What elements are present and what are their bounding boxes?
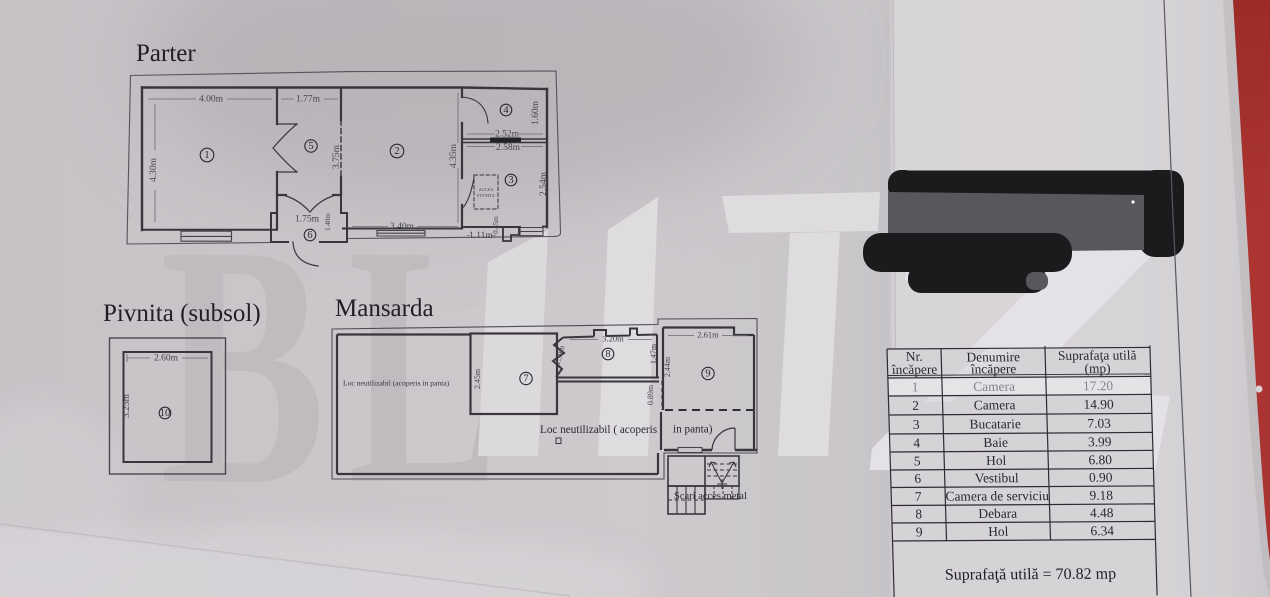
svg-text:3.99: 3.99 <box>1088 434 1112 449</box>
svg-text:7.03: 7.03 <box>1087 416 1111 431</box>
svg-text:17.20: 17.20 <box>1083 378 1114 393</box>
svg-text:2: 2 <box>912 398 919 413</box>
svg-text:1.60m: 1.60m <box>531 100 541 125</box>
svg-text:5: 5 <box>308 141 313 152</box>
svg-text:4: 4 <box>913 435 920 450</box>
svg-text:Camera: Camera <box>973 379 1015 394</box>
svg-text:4.35m: 4.35m <box>449 143 459 168</box>
svg-text:2.54m: 2.54m <box>539 171 549 196</box>
svg-text:Hol: Hol <box>986 453 1007 468</box>
svg-text:Parter: Parter <box>136 40 196 67</box>
svg-text:1: 1 <box>204 150 209 161</box>
svg-text:Mansarda: Mansarda <box>335 295 434 322</box>
svg-text:6.80: 6.80 <box>1088 452 1112 467</box>
svg-text:4.30m: 4.30m <box>149 157 159 182</box>
svg-text:5: 5 <box>914 453 921 468</box>
svg-text:Loc neutilizabil (acoperis in: Loc neutilizabil (acoperis in panta) <box>343 379 450 388</box>
svg-text:7: 7 <box>523 374 528 385</box>
svg-text:2.45m: 2.45m <box>473 368 482 389</box>
svg-text:8: 8 <box>915 506 922 521</box>
svg-text:încăpere: încăpere <box>891 362 938 377</box>
svg-text:6: 6 <box>914 471 921 486</box>
svg-text:încăpere: încăpere <box>970 361 1017 376</box>
svg-text:3.40m: 3.40m <box>390 222 415 232</box>
svg-text:2.60m: 2.60m <box>154 354 179 364</box>
svg-text:2.52m: 2.52m <box>495 130 520 140</box>
svg-text:0.90: 0.90 <box>1089 470 1113 485</box>
svg-text:9: 9 <box>705 369 710 380</box>
svg-text:1.77m: 1.77m <box>296 95 321 105</box>
svg-text:in panta): in panta) <box>673 424 713 436</box>
svg-text:6: 6 <box>307 230 312 241</box>
svg-text:4.00m: 4.00m <box>199 95 224 105</box>
svg-text:Bucatarie: Bucatarie <box>969 416 1021 431</box>
svg-text:0.45m: 0.45m <box>492 216 500 234</box>
svg-text:6.34: 6.34 <box>1090 523 1114 538</box>
svg-text:9: 9 <box>916 524 923 539</box>
svg-text:2.58m: 2.58m <box>496 143 521 153</box>
svg-text:Scari acces metal: Scari acces metal <box>674 491 747 502</box>
svg-text:Vestibul: Vestibul <box>975 470 1020 485</box>
svg-text:9.18: 9.18 <box>1089 488 1113 503</box>
svg-text:Pivnita (subsol): Pivnita (subsol) <box>103 300 261 327</box>
svg-text:8: 8 <box>605 349 610 360</box>
svg-text:1.11m: 1.11m <box>469 231 493 241</box>
svg-text:1.75m: 1.75m <box>295 215 320 225</box>
svg-text:0.89m: 0.89m <box>646 384 655 405</box>
svg-text:14.90: 14.90 <box>1083 397 1114 412</box>
svg-text:3: 3 <box>508 175 513 186</box>
svg-text:2.44m: 2.44m <box>663 356 672 377</box>
svg-text:4: 4 <box>503 105 509 116</box>
svg-text:3.25m: 3.25m <box>122 393 132 418</box>
svg-text:3.75m: 3.75m <box>332 144 342 169</box>
svg-text:Loc neutilizabil ( acoperis: Loc neutilizabil ( acoperis <box>540 424 657 436</box>
svg-text:Camera de serviciu: Camera de serviciu <box>945 488 1049 504</box>
svg-text:1: 1 <box>912 379 919 394</box>
svg-text:3: 3 <box>913 417 920 432</box>
svg-text:Suprafaţă utilă = 70.82 mp: Suprafaţă utilă = 70.82 mp <box>945 566 1117 584</box>
svg-text:ACCES: ACCES <box>479 187 494 192</box>
svg-text:Camera: Camera <box>974 397 1016 412</box>
svg-text:1.47m: 1.47m <box>649 343 658 364</box>
svg-text:2.61m: 2.61m <box>697 330 719 340</box>
svg-text:Hol: Hol <box>988 524 1009 539</box>
svg-text:2: 2 <box>394 146 399 157</box>
svg-text:4.48: 4.48 <box>1090 505 1114 520</box>
svg-text:Debara: Debara <box>978 506 1017 521</box>
svg-text:Baie: Baie <box>983 435 1008 450</box>
svg-text:10: 10 <box>160 408 171 419</box>
svg-text:7: 7 <box>915 489 922 504</box>
svg-text:B: B <box>160 175 326 557</box>
svg-text:3.20m: 3.20m <box>602 334 624 344</box>
svg-text:(mp): (mp) <box>1084 361 1110 376</box>
svg-text:1.40m: 1.40m <box>324 213 332 231</box>
svg-text:PIVNITA: PIVNITA <box>477 193 496 198</box>
